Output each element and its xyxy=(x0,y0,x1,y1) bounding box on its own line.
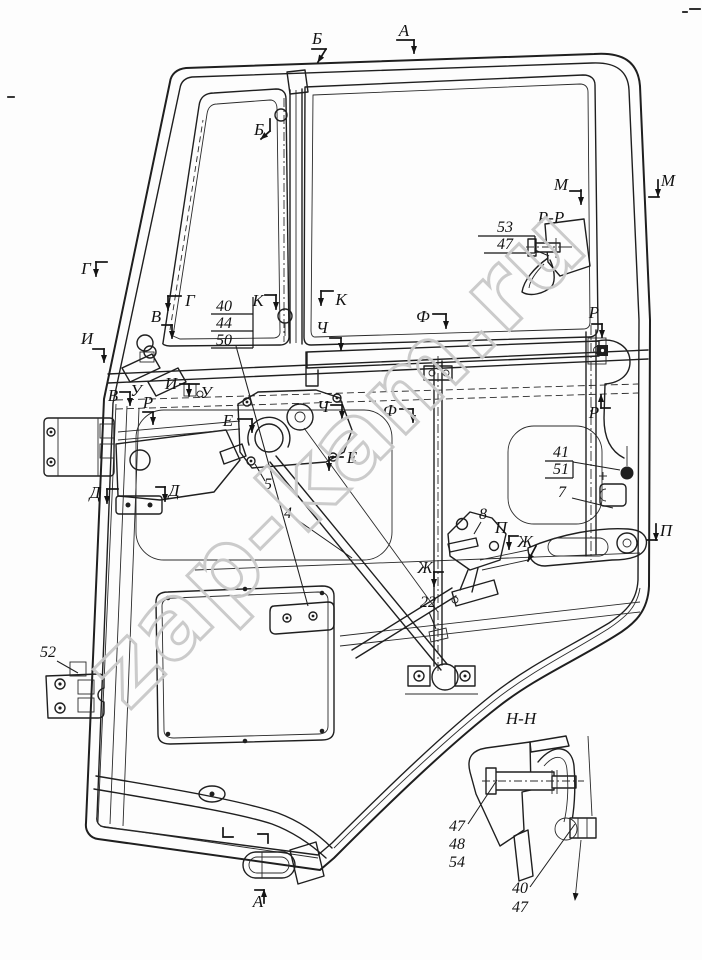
part-number-52: 52 xyxy=(40,644,56,661)
section-mark-g-frame: Г xyxy=(184,291,196,310)
part-number-22: 22 xyxy=(420,594,436,611)
drawing-svg: Б А Б М М Р-Р 53 47 Г Г 40 44 50 К К В И… xyxy=(0,0,702,960)
section-mark-zh-lock: Ж xyxy=(516,532,534,551)
section-mark-e-left: Е xyxy=(222,411,234,430)
part-number-7: 7 xyxy=(558,484,567,501)
section-mark-a-top: А xyxy=(398,21,410,40)
section-mark-b-top: Б xyxy=(311,29,322,48)
lock-knob xyxy=(621,467,634,480)
section-mark-i-left: И xyxy=(80,329,95,348)
section-mark-i-mid: И xyxy=(164,374,179,393)
section-mark-p-right: П xyxy=(659,521,674,540)
part-number-54: 54 xyxy=(449,854,465,871)
section-mark-a-bottom: А xyxy=(252,892,264,911)
part-number-8: 8 xyxy=(479,506,487,523)
watermark: zap-kam.ru xyxy=(62,183,608,729)
part-number-48: 48 xyxy=(449,836,465,853)
section-mark-ch-upper: Ч xyxy=(316,318,329,337)
part-number-40b: 40 xyxy=(512,880,528,897)
detail-title-nn: Н-Н xyxy=(505,709,538,728)
section-mark-r-mid: Р xyxy=(588,403,599,422)
cable-pulley xyxy=(432,664,458,690)
part-number-51: 51 xyxy=(553,461,569,478)
section-mark-d-left: Д xyxy=(88,483,102,502)
section-mark-b-vent: Б xyxy=(253,120,264,139)
part-number-47c: 47 xyxy=(512,899,529,916)
section-mark-zh-left: Ж xyxy=(416,558,434,577)
part-number-40: 40 xyxy=(216,298,232,315)
section-mark-g-left: Г xyxy=(80,259,92,278)
section-mark-p-lock: П xyxy=(494,518,509,537)
detail-nn xyxy=(469,736,596,900)
section-mark-k-right: К xyxy=(334,290,348,309)
section-mark-v-upper: В xyxy=(151,307,162,326)
part-number-44: 44 xyxy=(216,315,232,332)
section-mark-k-left: К xyxy=(251,291,265,310)
door-assembly-drawing: Б А Б М М Р-Р 53 47 Г Г 40 44 50 К К В И… xyxy=(0,0,702,960)
section-mark-v-lower: В xyxy=(108,386,119,405)
section-mark-m-right: М xyxy=(660,171,676,190)
part-number-41: 41 xyxy=(553,444,569,461)
section-mark-d-right: Д xyxy=(167,481,181,500)
section-mark-r-top: Р xyxy=(588,303,599,322)
section-mark-r-left: Р xyxy=(142,393,153,412)
part-number-47b: 47 xyxy=(449,818,466,835)
part-number-50: 50 xyxy=(216,332,232,349)
section-mark-m-left: М xyxy=(553,175,569,194)
section-mark-u-mid: У xyxy=(200,383,214,402)
sash-bracket xyxy=(270,602,334,634)
